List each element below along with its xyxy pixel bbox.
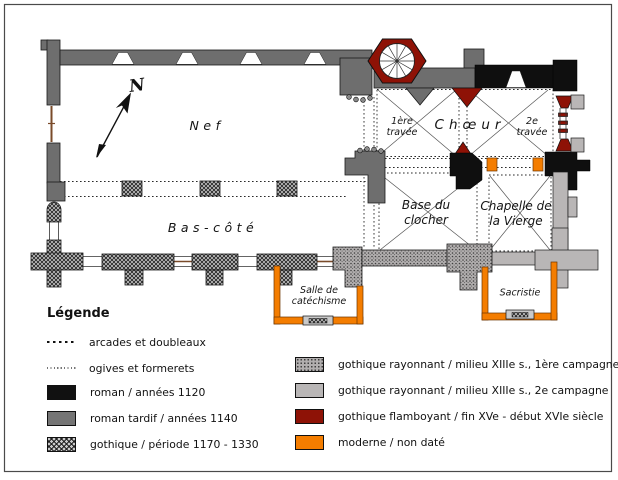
south-buttress-bar bbox=[257, 254, 317, 270]
clocher-southwest-pier bbox=[333, 247, 362, 287]
chapel-corner-pier-horizontal bbox=[535, 250, 598, 270]
legend-label: ogives et formerets bbox=[89, 362, 194, 375]
label-chapelle-line2: la Vierge bbox=[480, 214, 551, 229]
east-buttress-south bbox=[571, 138, 584, 152]
legend-swatch-roman bbox=[47, 385, 76, 400]
label-nef: Nef bbox=[190, 119, 225, 133]
north-letter: N bbox=[128, 75, 146, 97]
label-travee2: 2etravée bbox=[517, 116, 548, 138]
aisle-west-pier bbox=[47, 202, 61, 222]
rayonnant1-walls bbox=[333, 244, 492, 290]
label-salle-line1: Salle de bbox=[292, 285, 347, 296]
legend-item-flamboyant: gothique flamboyant / fin XVe - début XV… bbox=[295, 408, 603, 424]
chapel-east-pilaster bbox=[568, 197, 577, 217]
legend-swatch-gothique bbox=[47, 437, 76, 452]
south-buttress-stem bbox=[125, 270, 143, 285]
legend-label: gothique rayonnant / milieu XIIIe s., 1è… bbox=[338, 358, 618, 371]
legend-title: Légende bbox=[47, 306, 110, 321]
south-buttress-bar bbox=[192, 254, 238, 270]
north-arrow bbox=[96, 93, 131, 159]
west-wall-pier bbox=[47, 182, 65, 201]
legend-item-arcades: arcades et doubleaux bbox=[47, 334, 206, 350]
chapel-south-wall bbox=[490, 252, 537, 265]
legend-swatch-rayonnant1 bbox=[295, 357, 324, 372]
legend-swatch-ogives bbox=[47, 367, 77, 369]
east-window-top bbox=[556, 96, 573, 108]
modern-infill bbox=[487, 158, 497, 171]
modern-infill bbox=[533, 158, 543, 171]
crossing-middle-pier bbox=[345, 151, 385, 203]
turret-newel bbox=[395, 59, 398, 62]
label-choeur: Chœur bbox=[435, 118, 506, 134]
legend-item-moderne: moderne / non daté bbox=[295, 434, 445, 450]
legend-item-ogives: ogives et formerets bbox=[47, 360, 194, 376]
sacristie-west-wall bbox=[482, 267, 488, 320]
legend-item-rayonnant1: gothique rayonnant / milieu XIIIe s., 1è… bbox=[295, 356, 618, 372]
legend-label: gothique rayonnant / milieu XIIIe s., 2e… bbox=[338, 384, 608, 397]
label-travee1: 1èretravée bbox=[387, 116, 418, 138]
legend-label: arcades et doubleaux bbox=[89, 336, 206, 349]
legend-label: gothique / période 1170 - 1330 bbox=[90, 438, 259, 451]
legend-swatch-rayonnant2 bbox=[295, 383, 324, 398]
label-clocher: Base duclocher bbox=[402, 198, 450, 228]
arcade-pier bbox=[277, 181, 297, 196]
legend-item-rayonnant2: gothique rayonnant / milieu XIIIe s., 2e… bbox=[295, 382, 608, 398]
arcade-pier bbox=[200, 181, 220, 196]
legend-label: roman / années 1120 bbox=[90, 386, 205, 399]
clocher-south-wall bbox=[362, 250, 447, 266]
arcade-pier bbox=[122, 181, 142, 196]
engaged-shafts bbox=[347, 95, 384, 154]
label-clocher-line1: Base du bbox=[402, 198, 450, 213]
label-chapelle: Chapelle dela Vierge bbox=[480, 199, 551, 229]
label-salle-line2: catéchisme bbox=[292, 296, 347, 307]
west-door bbox=[48, 106, 55, 142]
sacristie-east-wall bbox=[551, 262, 557, 320]
east-window-bottom bbox=[556, 139, 573, 151]
legend-item-roman-tardif: roman tardif / années 1140 bbox=[47, 410, 238, 426]
church-floor-plan-page: Nef Bas-côté Chœur 1èretravée 2etravée B… bbox=[0, 0, 618, 480]
crossing-north-pier bbox=[340, 58, 372, 95]
label-bas-cote: Bas-côté bbox=[168, 221, 258, 235]
choir-northeast-corner bbox=[553, 60, 577, 91]
label-sacristie: Sacristie bbox=[500, 288, 541, 299]
legend-swatch-flamboyant bbox=[295, 409, 324, 424]
west-wall-upper bbox=[47, 40, 60, 105]
legend-label: roman tardif / années 1140 bbox=[90, 412, 238, 425]
label-salle: Salle decatéchisme bbox=[292, 285, 347, 307]
salle-west-wall bbox=[274, 266, 280, 324]
crossing-central-pier bbox=[450, 153, 482, 189]
legend-label: moderne / non daté bbox=[338, 436, 445, 449]
legend-swatch-roman-tardif bbox=[47, 411, 76, 426]
legend-item-roman: roman / années 1120 bbox=[47, 384, 205, 400]
south-buttress-stem bbox=[206, 270, 223, 285]
label-clocher-line2: clocher bbox=[402, 213, 450, 228]
label-travee1-line1: 1ère bbox=[387, 116, 418, 127]
label-travee2-line1: 2e bbox=[517, 116, 548, 127]
label-travee1-line2: travée bbox=[387, 127, 418, 138]
salle-east-wall bbox=[357, 286, 363, 324]
legend-item-gothique: gothique / période 1170 - 1330 bbox=[47, 436, 259, 452]
choir-northwest-springer bbox=[406, 88, 434, 105]
legend-swatch-arcades bbox=[47, 341, 77, 344]
legend-swatch-moderne bbox=[295, 435, 324, 450]
south-buttress-bar bbox=[102, 254, 174, 270]
label-chapelle-line1: Chapelle de bbox=[480, 199, 551, 214]
east-buttress-north bbox=[571, 95, 584, 109]
label-travee2-line2: travée bbox=[517, 127, 548, 138]
southwest-cross-pier-h bbox=[31, 253, 83, 270]
legend-label: gothique flamboyant / fin XVe - début XV… bbox=[338, 410, 603, 423]
west-wall-lower bbox=[47, 143, 60, 183]
